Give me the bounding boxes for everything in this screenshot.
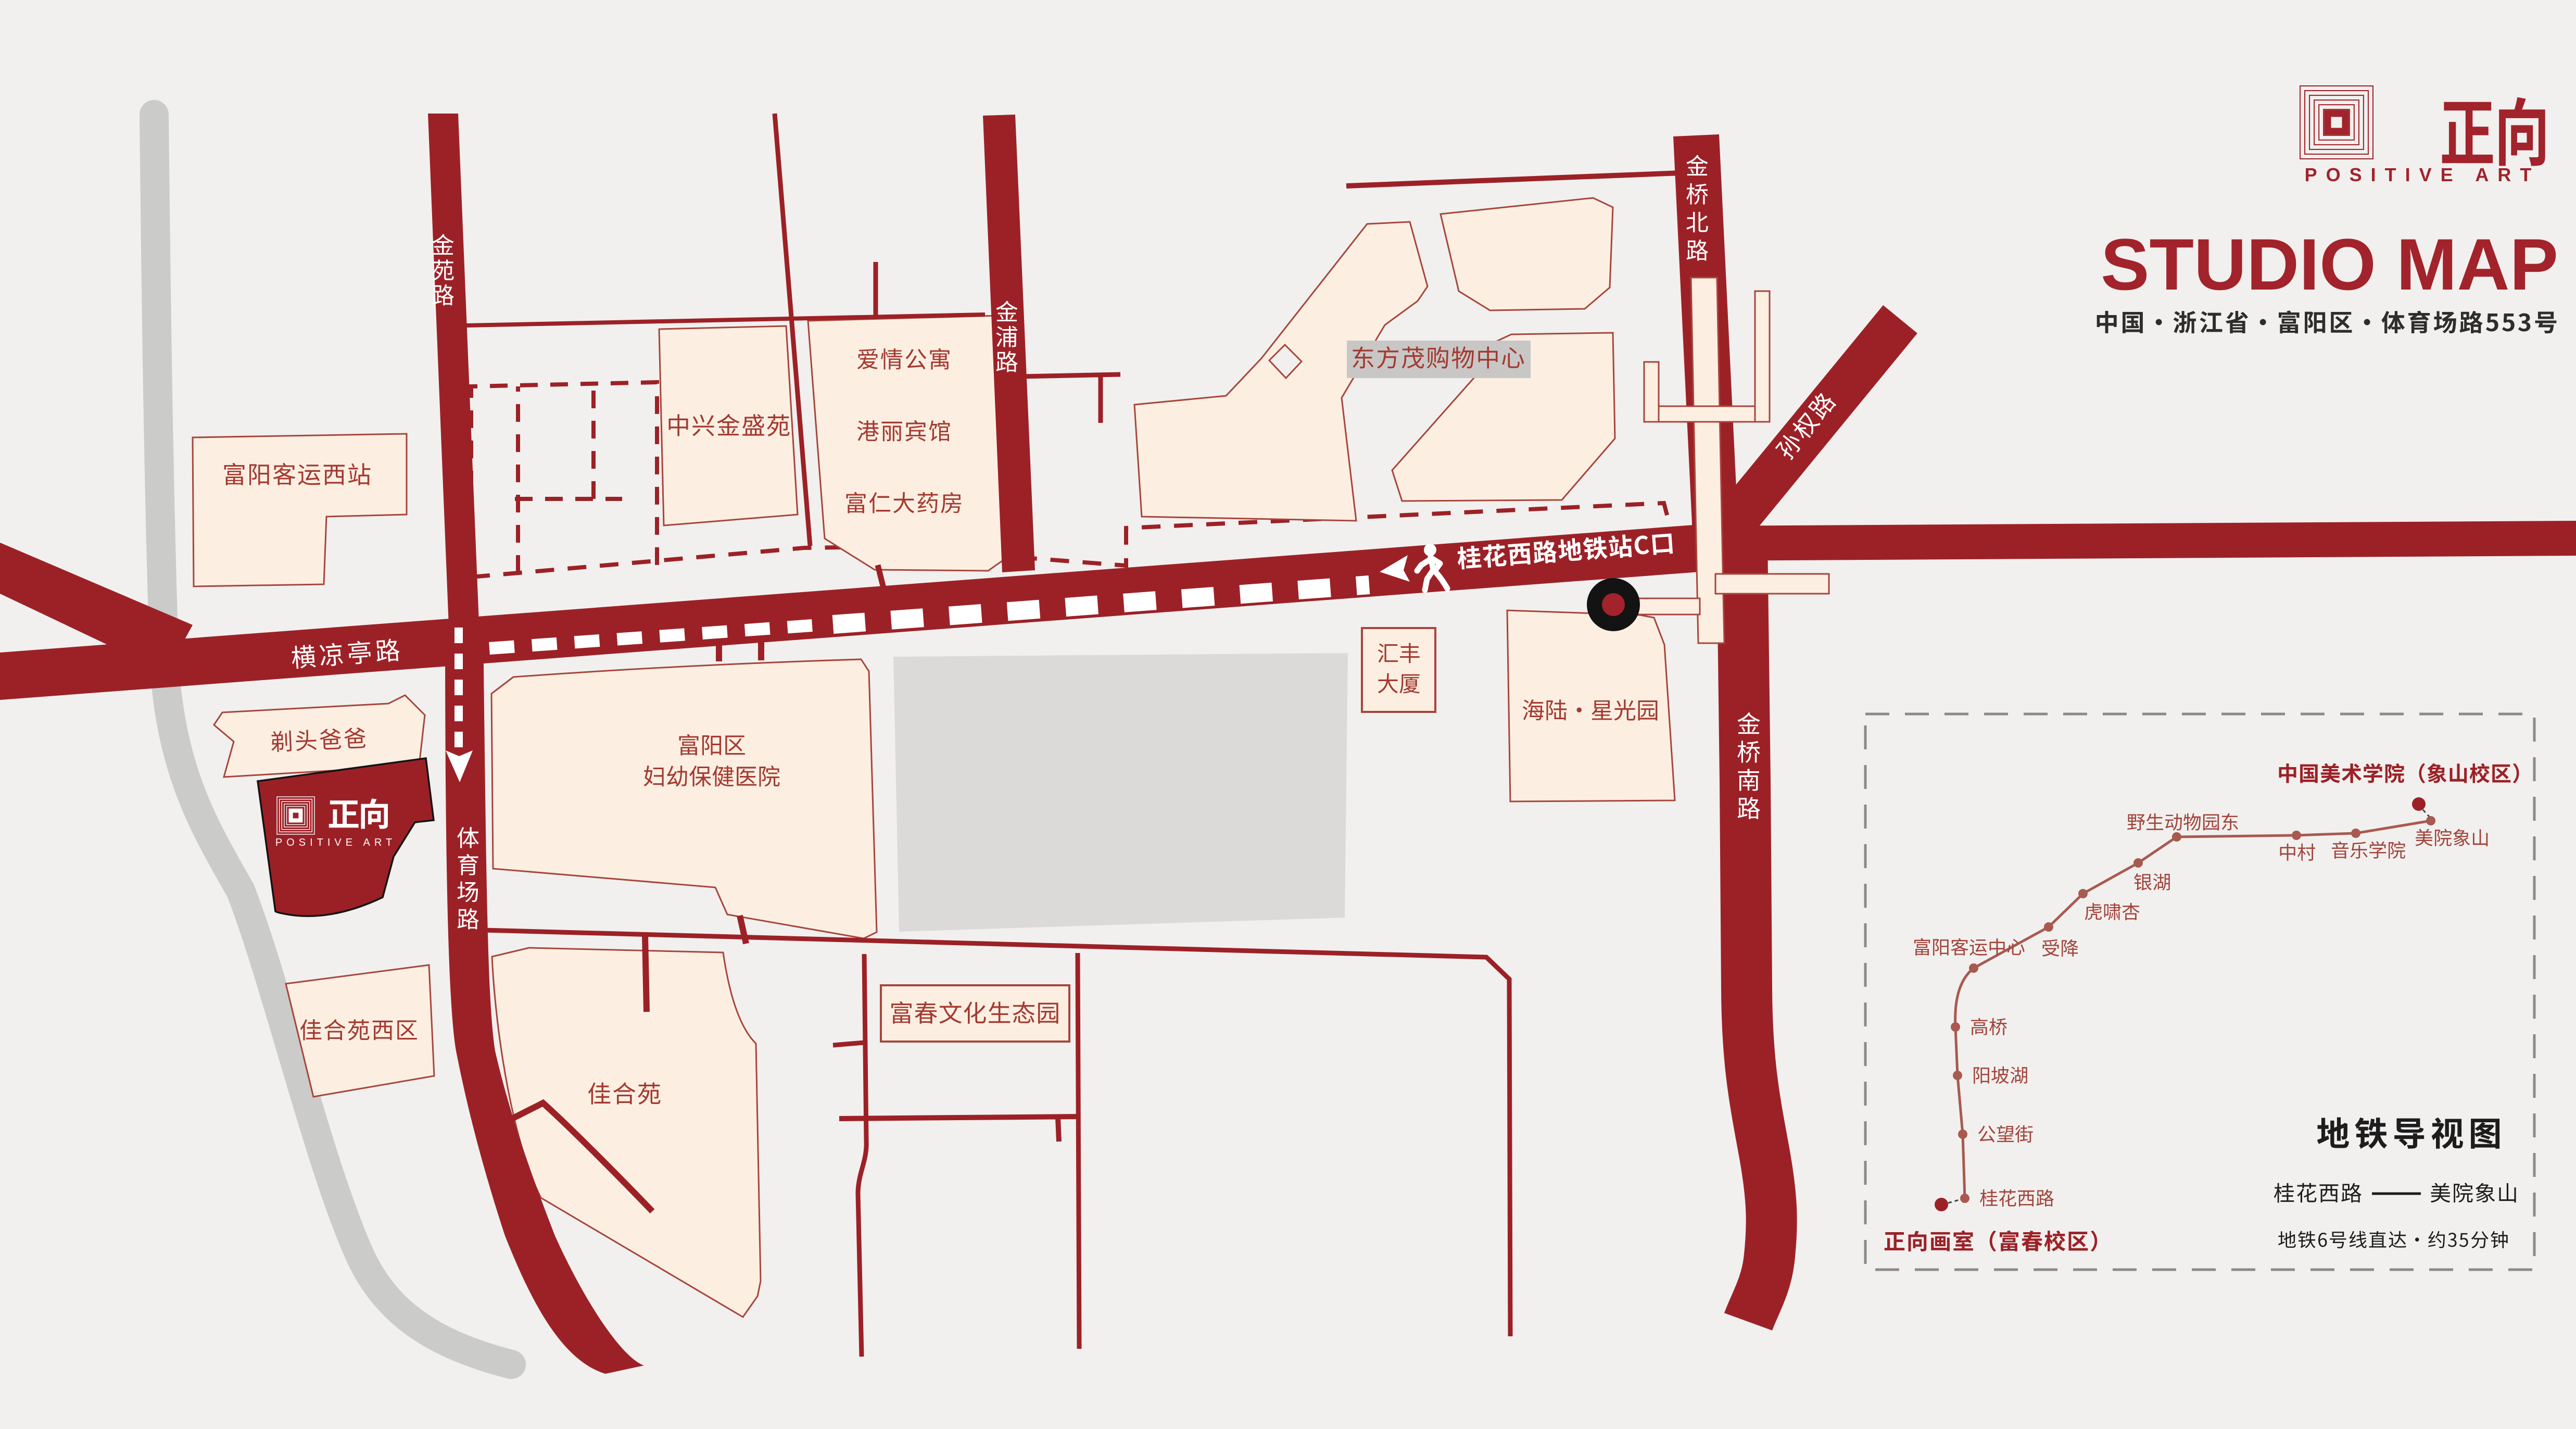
svg-text:妇幼保健医院: 妇幼保健医院	[643, 758, 780, 792]
svg-text:路: 路	[432, 277, 454, 310]
svg-text:地铁6号线直达·约35分钟: 地铁6号线直达·约35分钟	[2278, 1225, 2510, 1252]
svg-text:正向: 正向	[327, 788, 389, 835]
svg-text:中国·浙江省·富阳区·体育场路553号: 中国·浙江省·富阳区·体育场路553号	[2095, 304, 2560, 339]
svg-text:中兴金盛苑: 中兴金盛苑	[666, 407, 791, 442]
svg-text:富阳客运中心: 富阳客运中心	[1913, 933, 2025, 960]
svg-text:桂花西路: 桂花西路	[1979, 1184, 2054, 1211]
svg-text:银湖: 银湖	[2133, 868, 2171, 895]
svg-text:中村: 中村	[2278, 838, 2316, 865]
svg-text:POSITIVE ART: POSITIVE ART	[275, 834, 396, 849]
svg-text:地铁导视图: 地铁导视图	[2317, 1108, 2507, 1156]
svg-text:海陆·星光园: 海陆·星光园	[1522, 692, 1659, 725]
svg-text:港丽宾馆: 港丽宾馆	[856, 413, 952, 446]
svg-text:汇丰: 汇丰	[1377, 636, 1421, 668]
svg-text:美院象山: 美院象山	[2430, 1176, 2519, 1207]
svg-text:路: 路	[1686, 232, 1709, 266]
svg-text:富仁大药房: 富仁大药房	[844, 485, 964, 518]
svg-text:富阳客运西站: 富阳客运西站	[222, 456, 372, 491]
svg-text:美院象山: 美院象山	[2415, 823, 2490, 850]
svg-text:大厦: 大厦	[1377, 667, 1421, 698]
svg-text:路: 路	[1737, 790, 1761, 824]
svg-text:剃头爸爸: 剃头爸爸	[269, 720, 369, 757]
svg-text:阳坡湖: 阳坡湖	[1972, 1061, 2028, 1088]
svg-text:音乐学院: 音乐学院	[2331, 836, 2406, 863]
svg-text:富阳区: 富阳区	[677, 727, 746, 760]
svg-text:富春文化生态园: 富春文化生态园	[890, 995, 1061, 1029]
svg-text:路: 路	[457, 901, 479, 934]
svg-text:路: 路	[995, 344, 1018, 377]
svg-text:中国美术学院（象山校区）: 中国美术学院（象山校区）	[2277, 757, 2533, 787]
svg-text:桂花西路: 桂花西路	[2274, 1176, 2363, 1207]
svg-text:佳合苑西区: 佳合苑西区	[299, 1012, 419, 1045]
svg-text:东方茂购物中心: 东方茂购物中心	[1351, 340, 1526, 374]
svg-text:STUDIO MAP: STUDIO MAP	[2101, 206, 2558, 311]
svg-text:佳合苑: 佳合苑	[587, 1075, 662, 1110]
svg-text:POSITIVE ART: POSITIVE ART	[2305, 160, 2541, 187]
svg-text:野生动物园东: 野生动物园东	[2127, 808, 2239, 835]
svg-text:公望街: 公望街	[1977, 1120, 2034, 1147]
svg-text:正向画室（富春校区）: 正向画室（富春校区）	[1884, 1224, 2113, 1256]
svg-text:受降: 受降	[2041, 934, 2079, 961]
svg-text:虎啸杏: 虎啸杏	[2084, 897, 2140, 924]
svg-text:爱情公寓: 爱情公寓	[856, 341, 952, 374]
svg-text:高桥: 高桥	[1970, 1012, 2007, 1039]
